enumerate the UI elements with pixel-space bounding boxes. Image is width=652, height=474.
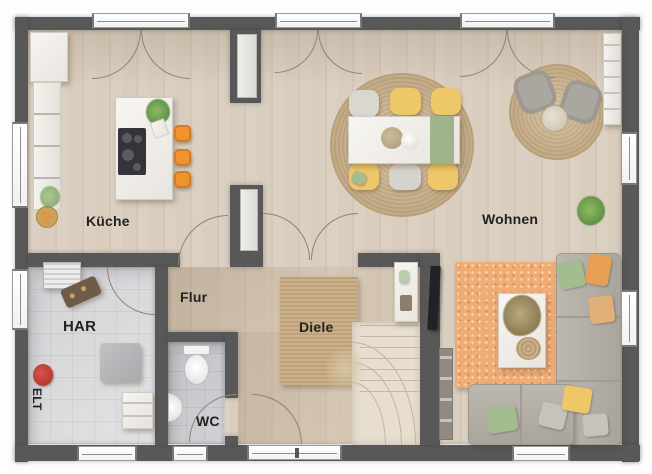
dining-chair xyxy=(389,164,421,190)
door-handle-icon xyxy=(295,448,299,458)
cabinet-decor xyxy=(399,270,409,284)
wall-left xyxy=(15,17,28,462)
table-runner xyxy=(430,116,454,164)
pillow xyxy=(587,295,615,325)
kitchen-plant-icon xyxy=(40,186,60,208)
table-centerpiece xyxy=(381,127,403,149)
toilet-bowl-icon xyxy=(184,354,209,385)
room-label-kueche: Küche xyxy=(86,213,130,229)
living-plant-icon xyxy=(577,196,605,226)
woven-tray xyxy=(516,337,541,360)
pillow xyxy=(582,413,609,437)
room-label-diele: Diele xyxy=(299,319,333,335)
room-label-flur: Flur xyxy=(180,289,207,305)
kitchen-tall-unit xyxy=(30,32,68,82)
window xyxy=(512,446,570,461)
wall-wc-north xyxy=(168,332,225,342)
floor-plan: Küche Wohnen Flur Diele HAR WC ELT xyxy=(0,0,652,474)
table-vase xyxy=(401,132,419,150)
pillow xyxy=(556,260,587,291)
bar-stool xyxy=(174,171,191,188)
pillow xyxy=(561,385,593,414)
dining-chair xyxy=(390,88,421,115)
cooktop-icon xyxy=(118,128,146,175)
window xyxy=(621,290,637,347)
tall-cabinet-top xyxy=(237,34,257,98)
coffee-table-plant-icon xyxy=(503,295,541,337)
sideboard xyxy=(603,33,621,125)
room-label-elt: ELT xyxy=(30,388,44,410)
window xyxy=(275,13,362,28)
bar-stool xyxy=(174,149,191,166)
storage-box xyxy=(100,343,141,382)
side-table xyxy=(541,105,568,132)
dining-chair xyxy=(349,90,379,117)
window xyxy=(621,132,637,185)
tall-cabinet-mid xyxy=(240,189,258,251)
bar-stool xyxy=(174,125,191,142)
room-label-wohnen: Wohnen xyxy=(482,211,538,227)
fruit-basket xyxy=(36,206,58,228)
window xyxy=(77,446,137,461)
wall-har-east xyxy=(155,267,168,445)
media-lowboard xyxy=(439,348,453,440)
vacuum-icon xyxy=(33,364,53,386)
room-label-wc: WC xyxy=(196,413,220,429)
window xyxy=(92,13,190,28)
dried-plant-icon xyxy=(326,346,364,396)
har-cabinet xyxy=(122,392,153,429)
wall-wc-east-upper xyxy=(225,332,238,398)
wall-right xyxy=(622,17,639,462)
dining-chair xyxy=(428,163,458,190)
window xyxy=(12,122,28,208)
window xyxy=(172,446,208,461)
window xyxy=(460,13,555,28)
room-label-har: HAR xyxy=(63,318,96,335)
pillow xyxy=(485,405,519,434)
dining-chair xyxy=(431,88,461,115)
window xyxy=(12,269,28,330)
cabinet-decor xyxy=(400,295,412,311)
